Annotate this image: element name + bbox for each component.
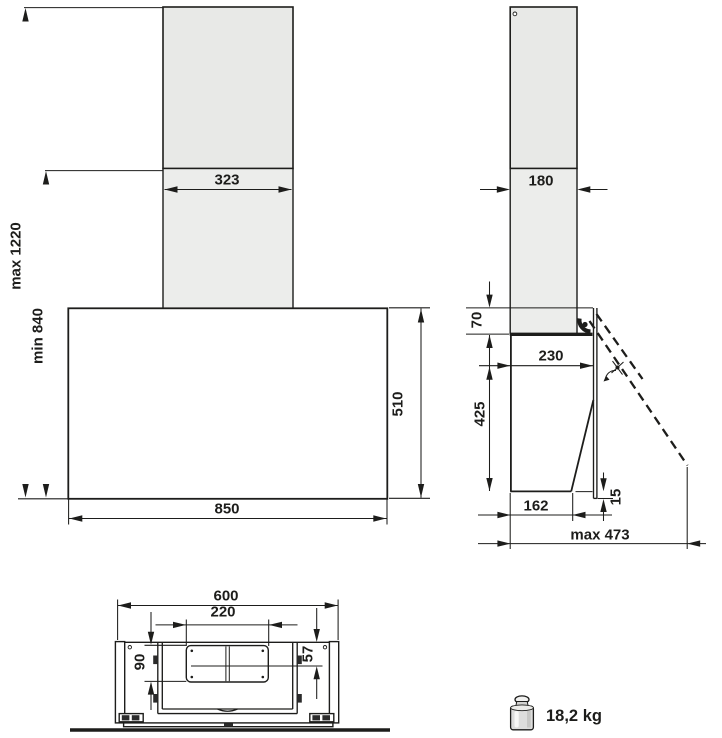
dim-bottom-outlet-depth: 90	[133, 654, 148, 671]
side-chimney-lower	[510, 169, 577, 335]
dim-front-height-min: min 840	[31, 308, 46, 364]
dim-front-body-width: 850	[214, 502, 239, 517]
side-chimney-upper	[510, 7, 577, 169]
arrow-up-max-top	[22, 8, 28, 22]
clip-left	[119, 714, 143, 722]
dim-bottom-center-offset: 57	[301, 646, 316, 663]
front-view	[18, 7, 430, 525]
weight-value: 18,2 kg	[546, 708, 602, 725]
dim-front-height-max: max 1220	[9, 222, 24, 290]
clip-right	[310, 714, 334, 722]
front-chimney-upper	[163, 7, 293, 169]
weight-icon	[511, 696, 534, 730]
technical-drawing-sheet: 323 max 1220 min 840 510 850 180 70 230 …	[0, 0, 722, 738]
dim-side-chimney-depth: 180	[528, 174, 553, 189]
arrow-down-max-bottom	[22, 484, 28, 498]
dim-side-panel-bottom: 15	[609, 489, 624, 506]
dim-bottom-outlet-width: 220	[210, 605, 235, 620]
drawing-geometry	[0, 0, 722, 738]
dim-side-top-depth: 230	[538, 349, 563, 364]
dim-front-chimney-width: 323	[214, 173, 239, 188]
side-view	[466, 7, 706, 549]
bottom-right-wall	[329, 642, 338, 723]
dim-side-open-depth: max 473	[570, 528, 629, 543]
dim-side-body-height: 425	[473, 401, 488, 426]
arrow-down-min-bottom	[43, 484, 49, 498]
open-panel-dashed	[590, 321, 688, 466]
dim-side-bottom-depth: 162	[523, 499, 548, 514]
chimney-hole	[513, 12, 517, 16]
dim-side-panel-top: 70	[470, 312, 485, 329]
arrow-up-min-top	[43, 171, 49, 185]
screw-right	[323, 646, 326, 649]
front-hood-body	[68, 308, 387, 499]
dim-front-body-height: 510	[391, 391, 406, 416]
dim-bottom-body-width: 600	[213, 589, 238, 604]
screw-left	[128, 646, 131, 649]
side-body-slant	[571, 400, 593, 491]
bottom-left-wall	[115, 642, 124, 723]
